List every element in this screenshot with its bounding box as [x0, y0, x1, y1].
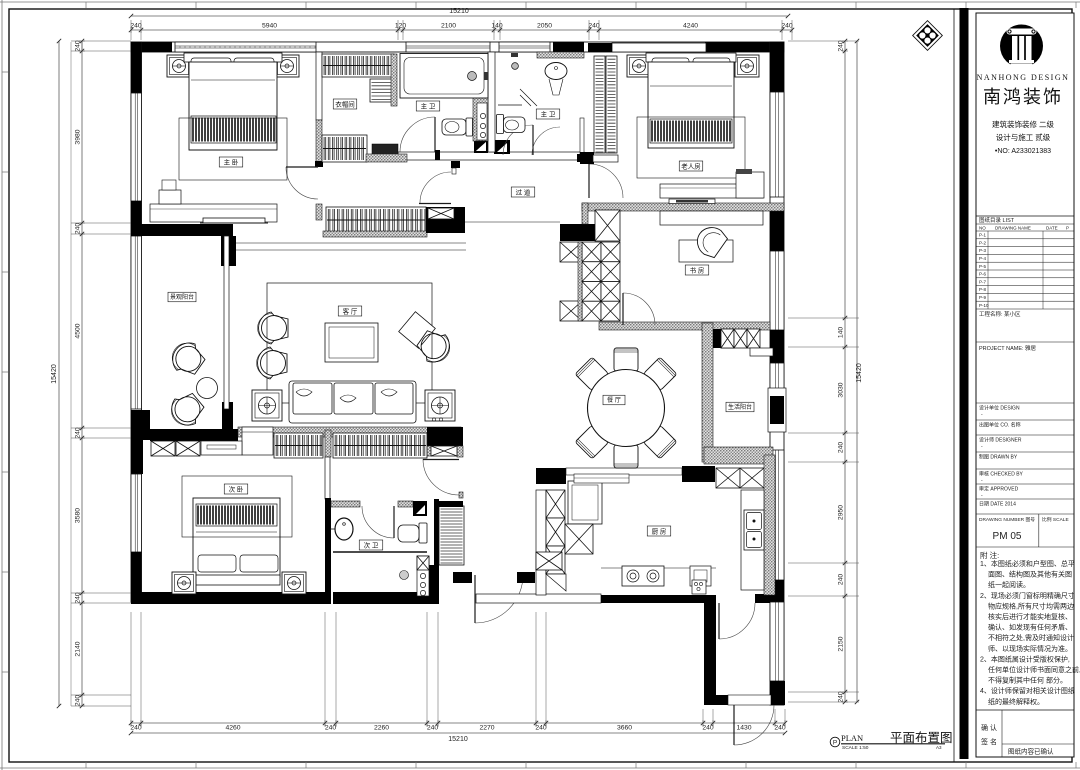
- svg-text:图纸目录 LIST: 图纸目录 LIST: [979, 216, 1015, 224]
- svg-text:老人房: 老人房: [681, 161, 701, 170]
- svg-text:140: 140: [491, 23, 503, 30]
- svg-text:PLAN: PLAN: [841, 733, 863, 743]
- svg-text:240: 240: [838, 691, 845, 703]
- svg-text:审定 APPROVED: 审定 APPROVED: [979, 486, 1019, 493]
- svg-text:确 认: 确 认: [981, 723, 997, 732]
- svg-text:日期 DATE 2014: 日期 DATE 2014: [979, 502, 1016, 508]
- svg-text:240: 240: [702, 725, 714, 732]
- svg-text:2270: 2270: [479, 725, 494, 732]
- svg-text:物应规格,所有尺寸均需两边: 物应规格,所有尺寸均需两边: [988, 601, 1074, 610]
- svg-text:面图、结构图及其他有关图: 面图、结构图及其他有关图: [988, 570, 1072, 579]
- svg-text:15210: 15210: [448, 736, 468, 743]
- svg-text:P-10: P-10: [979, 303, 989, 308]
- svg-text:P-4: P-4: [979, 256, 987, 261]
- svg-text:240: 240: [130, 725, 142, 732]
- svg-text:建筑装饰装修 二级: 建筑装饰装修 二级: [992, 119, 1055, 129]
- svg-text:南鸿装饰: 南鸿装饰: [983, 87, 1063, 107]
- svg-text:生活阳台: 生活阳台: [728, 403, 752, 411]
- svg-text:A3: A3: [936, 745, 942, 750]
- svg-text:1、本图纸必须和户型图、总平: 1、本图纸必须和户型图、总平: [980, 559, 1075, 568]
- svg-text:2、现场必须门窗标明精确尺寸: 2、现场必须门窗标明精确尺寸: [980, 591, 1075, 600]
- svg-text:5940: 5940: [262, 23, 277, 30]
- svg-text:制图 DRAWN BY: 制图 DRAWN BY: [979, 454, 1018, 461]
- svg-text:P-9: P-9: [979, 295, 987, 300]
- svg-text:4240: 4240: [683, 23, 698, 30]
- svg-text:纸的最终解释权。: 纸的最终解释权。: [988, 697, 1044, 706]
- svg-text:P-7: P-7: [979, 279, 987, 284]
- svg-text:240: 240: [838, 442, 845, 454]
- svg-text:平面布置图: 平面布置图: [890, 731, 953, 745]
- svg-text:4、设计师保留对相关设计图纸: 4、设计师保留对相关设计图纸: [980, 686, 1075, 695]
- svg-text:书 房: 书 房: [690, 265, 705, 274]
- svg-text:15420: 15420: [856, 363, 863, 383]
- svg-text:签 名: 签 名: [981, 737, 997, 746]
- svg-text:240: 240: [781, 23, 793, 30]
- svg-text:•NO: A233021383: •NO: A233021383: [995, 148, 1051, 155]
- svg-text:4260: 4260: [225, 725, 240, 732]
- svg-text:P-1: P-1: [979, 233, 987, 238]
- svg-text:240: 240: [130, 23, 142, 30]
- svg-text:240: 240: [838, 40, 845, 52]
- svg-text:DRAWING NUMBER 图号: DRAWING NUMBER 图号: [979, 517, 1035, 523]
- svg-text:140: 140: [838, 327, 845, 339]
- svg-text:次 卧: 次 卧: [229, 484, 244, 493]
- svg-text:240: 240: [588, 23, 600, 30]
- svg-text:3580: 3580: [75, 508, 82, 523]
- svg-text:DATE: DATE: [1046, 226, 1058, 231]
- svg-text:设计与施工 贰级: 设计与施工 贰级: [996, 132, 1051, 142]
- svg-text:PM 05: PM 05: [993, 531, 1022, 542]
- svg-text:设计单位 DESIGN: 设计单位 DESIGN: [979, 405, 1020, 412]
- svg-text:设计师 DESIGNER: 设计师 DESIGNER: [979, 437, 1022, 444]
- svg-text:240: 240: [75, 40, 82, 52]
- svg-text:2150: 2150: [838, 636, 845, 651]
- svg-text:2140: 2140: [75, 641, 82, 656]
- svg-text:P: P: [833, 740, 837, 747]
- svg-text:P: P: [1066, 226, 1069, 231]
- svg-text:厨 房: 厨 房: [652, 526, 667, 535]
- svg-text:纸一起阅读。: 纸一起阅读。: [988, 580, 1030, 589]
- svg-text:主 卧: 主 卧: [224, 157, 239, 166]
- svg-text:3980: 3980: [75, 129, 82, 144]
- svg-text:PROJECT NAME: 雅居: PROJECT NAME: 雅居: [979, 344, 1037, 352]
- svg-text:不得复制其中任何 部分。: 不得复制其中任何 部分。: [988, 676, 1067, 685]
- svg-text:240: 240: [75, 695, 82, 707]
- svg-text:P-2: P-2: [979, 240, 987, 245]
- svg-text:图纸内容已确认: 图纸内容已确认: [1008, 747, 1054, 756]
- svg-text:P-5: P-5: [979, 264, 987, 269]
- svg-text:P-3: P-3: [979, 248, 987, 253]
- svg-text:1430: 1430: [736, 725, 751, 732]
- svg-text:240: 240: [325, 725, 337, 732]
- svg-text:师、以现场实际情况为准。: 师、以现场实际情况为准。: [988, 644, 1072, 653]
- svg-text:餐 厅: 餐 厅: [607, 396, 621, 404]
- svg-text:衣帽间: 衣帽间: [335, 99, 355, 108]
- svg-text:P-8: P-8: [979, 287, 987, 292]
- svg-text:P-6: P-6: [979, 272, 987, 277]
- svg-text:15420: 15420: [51, 364, 58, 384]
- svg-text:客 厅: 客 厅: [343, 306, 358, 315]
- svg-text:120: 120: [395, 23, 407, 30]
- svg-text:审核 CHECKED BY: 审核 CHECKED BY: [979, 471, 1024, 478]
- svg-text:NO: NO: [979, 226, 986, 231]
- svg-text:SCALE 1:50: SCALE 1:50: [842, 745, 869, 751]
- svg-text:工程名称: 某小区: 工程名称: 某小区: [979, 310, 1021, 318]
- svg-text:不相符之处,需及时通知设计: 不相符之处,需及时通知设计: [988, 633, 1074, 642]
- svg-text:过 道: 过 道: [516, 187, 531, 196]
- svg-text:3660: 3660: [617, 725, 632, 732]
- svg-text:主 卫: 主 卫: [421, 101, 436, 110]
- svg-text:2950: 2950: [838, 505, 845, 520]
- svg-text:2100: 2100: [441, 23, 456, 30]
- svg-text:2260: 2260: [374, 725, 389, 732]
- svg-text:240: 240: [75, 592, 82, 604]
- svg-text:任何单位设计师书面同意之前,: 任何单位设计师书面同意之前,: [988, 665, 1080, 674]
- svg-text:240: 240: [75, 427, 82, 439]
- svg-text:240: 240: [774, 725, 786, 732]
- svg-text:240: 240: [427, 725, 439, 732]
- svg-text:次 卫: 次 卫: [364, 540, 379, 549]
- svg-text:240: 240: [75, 223, 82, 235]
- svg-text:240: 240: [535, 725, 547, 732]
- svg-text:2、本图纸属设计受版权保护,: 2、本图纸属设计受版权保护,: [980, 654, 1070, 663]
- svg-text:附 注:: 附 注:: [980, 550, 999, 560]
- svg-text:出图单位 CO. 名称: 出图单位 CO. 名称: [979, 422, 1021, 429]
- svg-text:240: 240: [838, 574, 845, 586]
- svg-text:确认、如发现有任何矛盾、: 确认、如发现有任何矛盾、: [988, 623, 1072, 632]
- svg-text:3030: 3030: [838, 382, 845, 397]
- svg-text:比例 SCALE: 比例 SCALE: [1042, 516, 1069, 523]
- svg-text:DRAWING NAME: DRAWING NAME: [995, 226, 1031, 231]
- svg-text:NANHONG DESIGN: NANHONG DESIGN: [977, 73, 1070, 82]
- svg-text:15210: 15210: [449, 8, 469, 15]
- svg-text:4500: 4500: [75, 323, 82, 338]
- svg-text:景观阳台: 景观阳台: [170, 293, 194, 301]
- svg-text:2050: 2050: [537, 23, 552, 30]
- svg-text:主 卫: 主 卫: [541, 109, 556, 118]
- svg-text:核实后进行才能实地复核、: 核实后进行才能实地复核、: [988, 612, 1072, 621]
